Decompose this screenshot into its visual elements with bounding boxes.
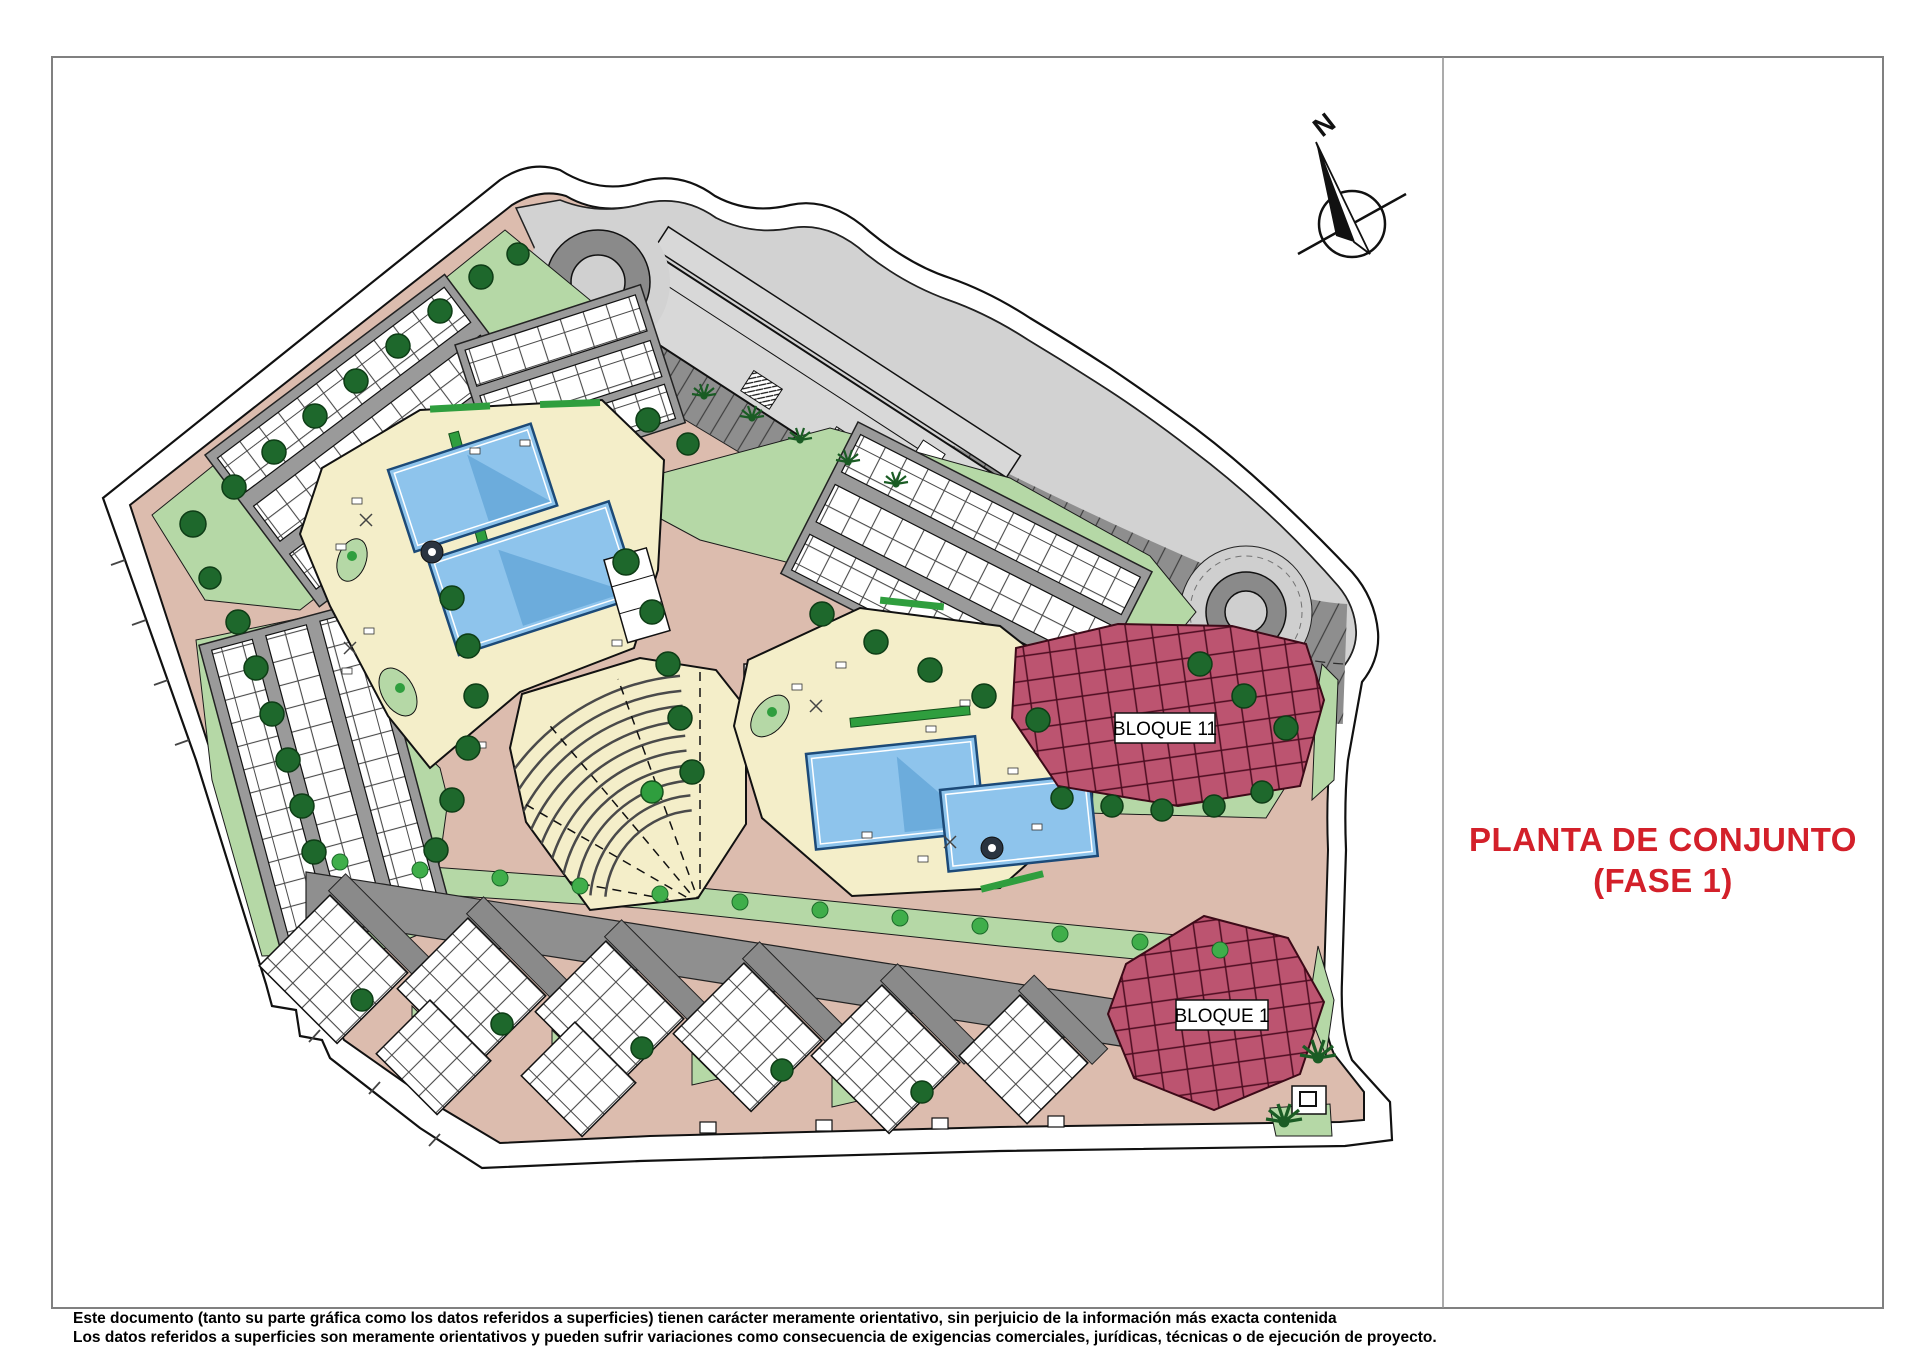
site-plan-svg: BLOQUE 11 BLOQUE 1 N (0, 0, 1920, 1357)
sheet: BLOQUE 11 BLOQUE 1 N PLANTA DE CONJUNTO … (0, 0, 1920, 1357)
north-compass: N (1298, 107, 1406, 257)
page-title: PLANTA DE CONJUNTO (1443, 820, 1883, 861)
bloque-11-label-text: BLOQUE 11 (1113, 719, 1217, 740)
compass-n-label: N (1307, 107, 1341, 143)
bloque-1-label: BLOQUE 1 (1174, 1000, 1269, 1030)
disclaimer-line-2: Los datos referidos a superficies son me… (73, 1329, 1893, 1348)
title-block: PLANTA DE CONJUNTO (FASE 1) (1443, 820, 1883, 902)
disclaimer: Este documento (tanto su parte gráfica c… (73, 1310, 1893, 1348)
page-subtitle: (FASE 1) (1443, 861, 1883, 902)
disclaimer-line-1: Este documento (tanto su parte gráfica c… (73, 1310, 1893, 1329)
bloque-11-label: BLOQUE 11 (1113, 713, 1217, 743)
bloque-1-label-text: BLOQUE 1 (1174, 1006, 1269, 1027)
site-plan: BLOQUE 11 BLOQUE 1 (103, 167, 1392, 1168)
